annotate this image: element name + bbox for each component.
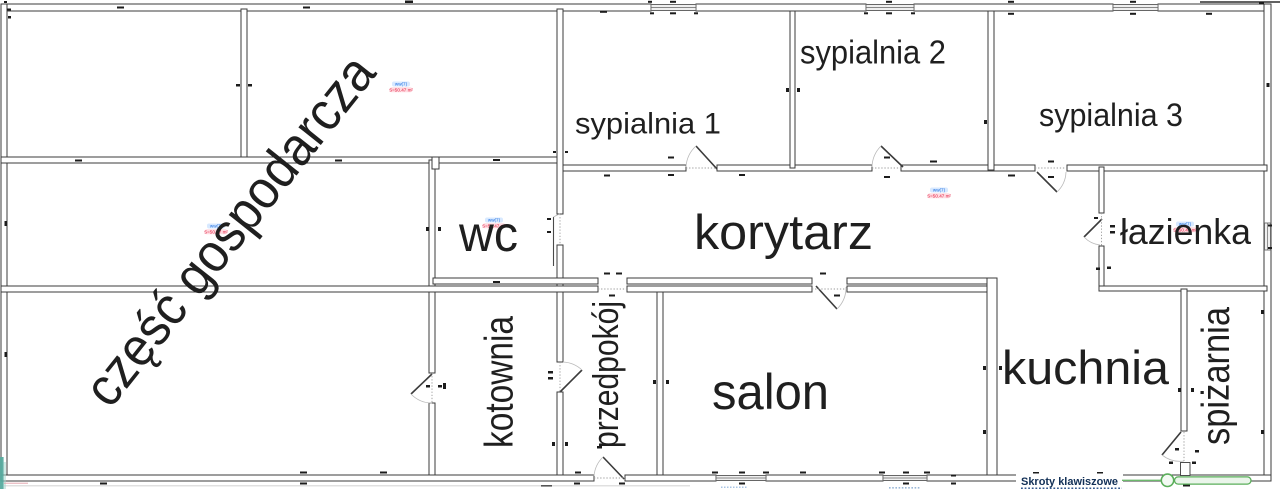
svg-text:ww(7): ww(7) (933, 188, 946, 193)
svg-text:łazienka: łazienka (1120, 211, 1252, 252)
svg-text:spiżarnia: spiżarnia (1195, 307, 1238, 445)
svg-text:S=50.47 m²: S=50.47 m² (927, 194, 951, 199)
svg-text:kotownia: kotownia (478, 315, 522, 448)
svg-text:przedpokój: przedpokój (585, 301, 626, 448)
svg-text:kuchnia: kuchnia (1002, 341, 1170, 394)
svg-text:sypialnia 3: sypialnia 3 (1039, 97, 1183, 133)
svg-text:sypialnia 1: sypialnia 1 (575, 108, 721, 141)
svg-text:wc: wc (458, 206, 518, 262)
svg-text:Skroty klawiszowe: Skroty klawiszowe (1021, 476, 1118, 488)
svg-text:ww(7): ww(7) (395, 82, 408, 87)
svg-text:sypialnia 2: sypialnia 2 (800, 34, 946, 71)
svg-text:korytarz: korytarz (694, 206, 873, 260)
svg-text:salon: salon (712, 364, 829, 420)
svg-text:S=50.47 m²: S=50.47 m² (389, 88, 413, 93)
